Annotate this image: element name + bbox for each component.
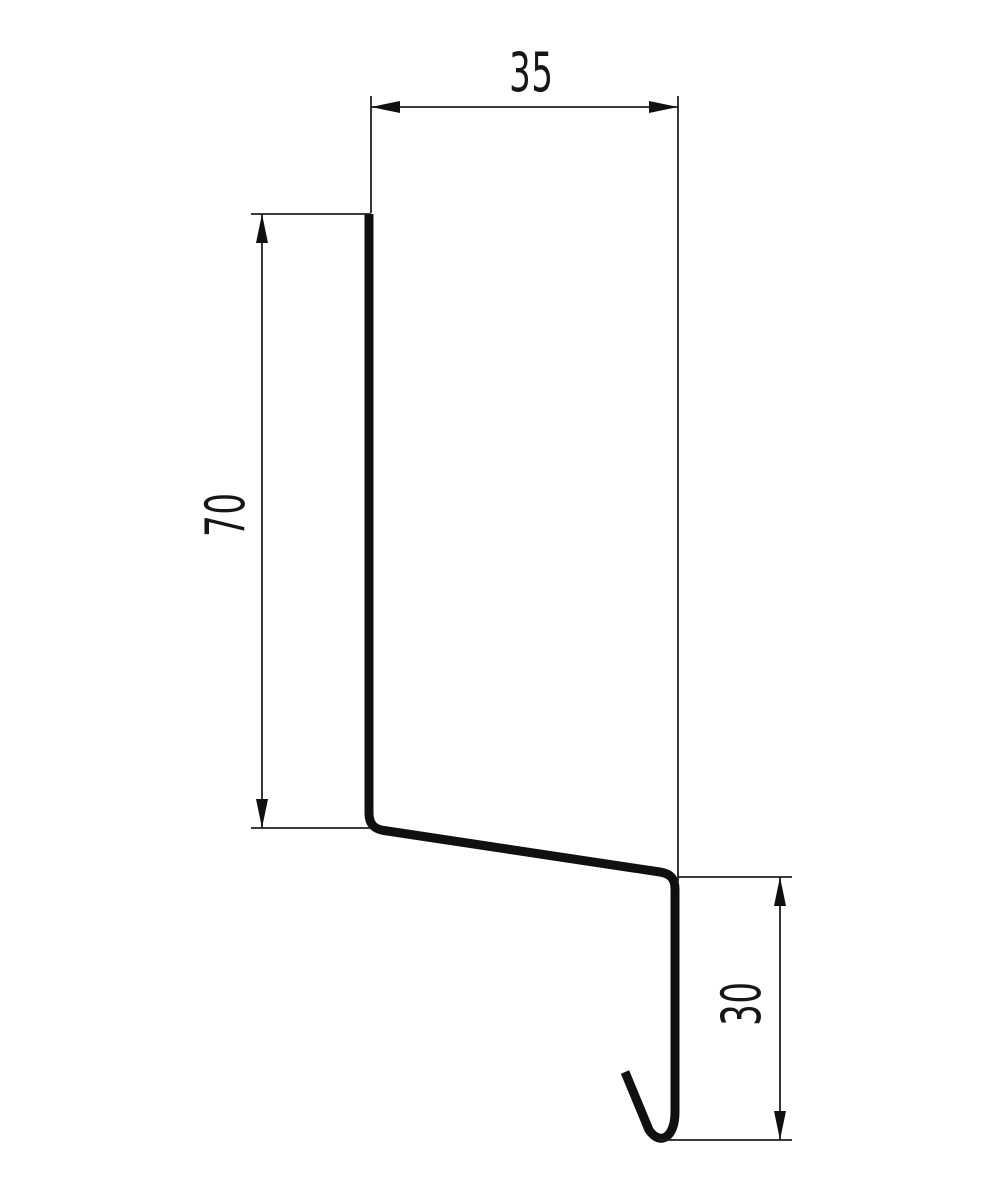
dimension-top-width <box>371 96 678 882</box>
profile-outline <box>369 214 675 1138</box>
arrow-left <box>371 101 400 113</box>
dimension-left-height <box>251 214 371 828</box>
profile-drawing <box>0 0 992 1185</box>
arrow-right <box>649 101 678 113</box>
arrow-up <box>774 877 786 906</box>
arrow-down <box>256 799 268 828</box>
arrow-down <box>774 1111 786 1140</box>
arrow-up <box>256 214 268 243</box>
drawing-canvas: 35 70 30 <box>0 0 992 1185</box>
